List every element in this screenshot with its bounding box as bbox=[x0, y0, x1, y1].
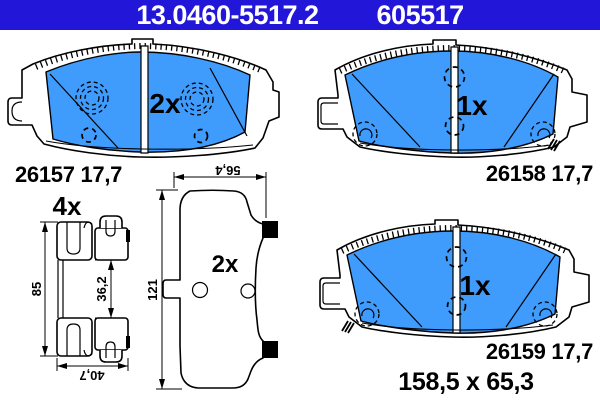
dim-arrow bbox=[118, 363, 128, 369]
clip-tab-end bbox=[126, 230, 130, 242]
clip-lower-half bbox=[57, 318, 130, 362]
dim-arrow bbox=[159, 190, 165, 200]
pad-drawing-bottom-right: 1x 26159 17,7 158,5 x 65,3 bbox=[320, 220, 593, 396]
title-bar: 13.0460-5517.2 605517 bbox=[0, 0, 600, 30]
dim-value-56-4: 56,4 bbox=[215, 163, 241, 178]
clip-hook bbox=[100, 216, 122, 228]
dim-arrow bbox=[108, 260, 114, 270]
center-slot bbox=[141, 46, 148, 153]
article-number: 13.0460-5517.2 bbox=[136, 0, 318, 30]
dim-arrow bbox=[57, 363, 67, 369]
dim-value-121: 121 bbox=[145, 279, 160, 301]
diagram-canvas: 2x 26157 17,7 1x 26158 17,7 bbox=[0, 30, 600, 400]
dim-value-85: 85 bbox=[29, 282, 44, 296]
pad-dimensions-label: 158,5 x 65,3 bbox=[398, 368, 533, 396]
shim-tab bbox=[262, 221, 278, 238]
wear-indicator-icon bbox=[342, 321, 354, 333]
dim-arrow bbox=[108, 308, 114, 318]
quantity-label: 1x bbox=[459, 270, 491, 301]
dim-value-36-2: 36,2 bbox=[94, 276, 109, 301]
dim-value-40-7: 40,7 bbox=[79, 368, 104, 383]
quantity-label: 4x bbox=[53, 191, 82, 221]
quantity-label: 1x bbox=[456, 90, 488, 121]
order-number: 605517 bbox=[377, 0, 464, 30]
clip-channel bbox=[58, 260, 63, 318]
pad-shape-copy bbox=[320, 220, 589, 337]
quantity-label: 2x bbox=[149, 88, 181, 119]
shim-tab bbox=[262, 341, 278, 358]
brake-pad-set-technical-drawing: 13.0460-5517.2 605517 2x 26157 17,7 bbox=[0, 0, 600, 400]
dim-arrow bbox=[159, 379, 165, 389]
dim-arrow bbox=[174, 174, 184, 180]
quantity-label: 2x bbox=[212, 251, 239, 278]
part-number-label: 26159 17,7 bbox=[486, 339, 593, 364]
fitting-kit-drawing: 4x 85 36,2 40,7 bbox=[29, 191, 130, 383]
pad-drawing-top-right bbox=[318, 40, 587, 157]
dim-arrow bbox=[256, 174, 266, 180]
clip-right-foot bbox=[95, 228, 128, 260]
part-number-label: 26158 17,7 bbox=[486, 161, 593, 186]
clip-upper-half bbox=[57, 216, 130, 260]
dim-arrow bbox=[42, 222, 48, 232]
back-plate-drawing: 2x 56,4 121 bbox=[145, 163, 278, 389]
dim-arrow bbox=[42, 346, 48, 356]
part-number-label: 26157 17,7 bbox=[15, 162, 122, 187]
back-plate-outline bbox=[163, 190, 263, 388]
